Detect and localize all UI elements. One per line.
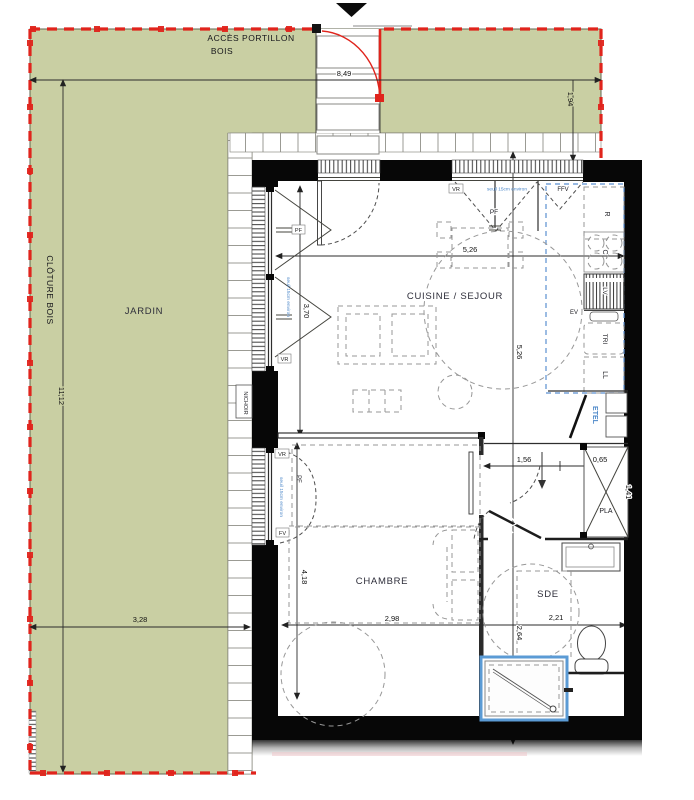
dim-pla-height: 1,41 <box>624 485 633 500</box>
label-cuisine-sejour: CUISINE / SEJOUR <box>407 291 503 302</box>
pillow <box>452 580 478 620</box>
wall-west-lower <box>252 545 278 716</box>
label-ffv: FFV <box>557 187 568 193</box>
paving-north-strip <box>230 133 601 152</box>
dim-pla-width: 0,65 <box>593 455 608 464</box>
dim-jardin-height: 11,12 <box>57 387 66 405</box>
dim-chambre-width: 2,98 <box>385 614 400 623</box>
shower <box>481 657 567 720</box>
dim-jardin-width: 8,49 <box>337 69 352 78</box>
label-seuil-chambre: seuil 15cm environ <box>278 477 284 517</box>
label-pf-bay: PF <box>295 228 303 234</box>
floor-plan-page: ACCÈS PORTILLON BOIS CLÔTURE BOIS JARDIN… <box>0 0 694 800</box>
label-fv-chambre: FV <box>279 531 286 537</box>
label-fridge-r: R <box>603 211 610 216</box>
label-etel: ETEL <box>591 406 598 425</box>
chambre-door-leaf <box>469 452 473 514</box>
etel-door-leaf <box>570 395 586 438</box>
plan-pointer-marker <box>336 3 367 17</box>
label-acces-bois: BOIS <box>211 46 233 56</box>
sde-fixtures <box>481 543 624 720</box>
label-pf-kitchen: PF <box>490 209 498 216</box>
dim-bottom-width: 3,28 <box>133 615 148 624</box>
sink <box>590 312 618 321</box>
turning-circle-sde <box>483 564 579 660</box>
chambre-door-swing <box>510 466 540 503</box>
label-pf-chambre: PF <box>295 475 301 483</box>
entry-door-leaf <box>318 181 322 245</box>
label-acces-portillon: ACCÈS PORTILLON <box>207 33 294 43</box>
label-sink-ev: EV <box>570 310 578 316</box>
dim-acces-height: 1,94 <box>566 92 575 107</box>
label-sde: SDE <box>537 589 559 600</box>
paving-west-strip <box>228 133 252 774</box>
label-cooktop-c: C <box>601 249 608 254</box>
toilet-bowl <box>578 626 606 661</box>
dim-sejour-height: 5,26 <box>515 345 524 360</box>
dim-bay-height: 3,70 <box>302 304 311 319</box>
down-arrow <box>538 480 546 489</box>
dim-sejour-width: 5,26 <box>463 245 478 254</box>
label-jardin: JARDIN <box>125 306 164 317</box>
label-vr-kitchen: VR <box>452 187 460 193</box>
label-washer-ll: LL <box>601 371 608 379</box>
turning-circle-living <box>424 231 582 389</box>
label-vr-chambre: VR <box>278 452 286 458</box>
site-plan-svg: ACCÈS PORTILLON BOIS CLÔTURE BOIS JARDIN… <box>0 0 694 800</box>
gate-slat <box>317 136 379 154</box>
bed <box>289 526 480 623</box>
label-seuil-bay: seuil 15cm environ <box>285 277 291 317</box>
dim-hall: 1,56 <box>517 455 532 464</box>
shower-door-handle <box>564 688 573 692</box>
dining-table <box>452 228 508 268</box>
dim-chambre-height: 4,18 <box>300 570 309 585</box>
label-cloture-bois: CLÔTURE BOIS <box>45 255 55 324</box>
tv-stand <box>353 390 401 412</box>
label-seuil-kitchen: seuil 15cm environ <box>487 187 527 193</box>
entry-door-swing <box>321 183 379 245</box>
label-tri: TRI <box>601 334 608 345</box>
kitchen-counter <box>546 184 624 393</box>
label-pla: PLA <box>599 508 613 515</box>
wall-south <box>252 716 642 740</box>
gate-slat <box>317 104 379 130</box>
dim-sde-width: 2,21 <box>549 613 564 622</box>
label-nichoir: NICHOIR <box>242 391 248 414</box>
label-vr-bay: VR <box>281 357 289 363</box>
dim-sde-height: 2,64 <box>515 626 524 641</box>
sofa-group <box>338 306 436 364</box>
label-chambre: CHAMBRE <box>356 576 408 587</box>
label-dishwasher-lv: LV <box>601 287 608 295</box>
